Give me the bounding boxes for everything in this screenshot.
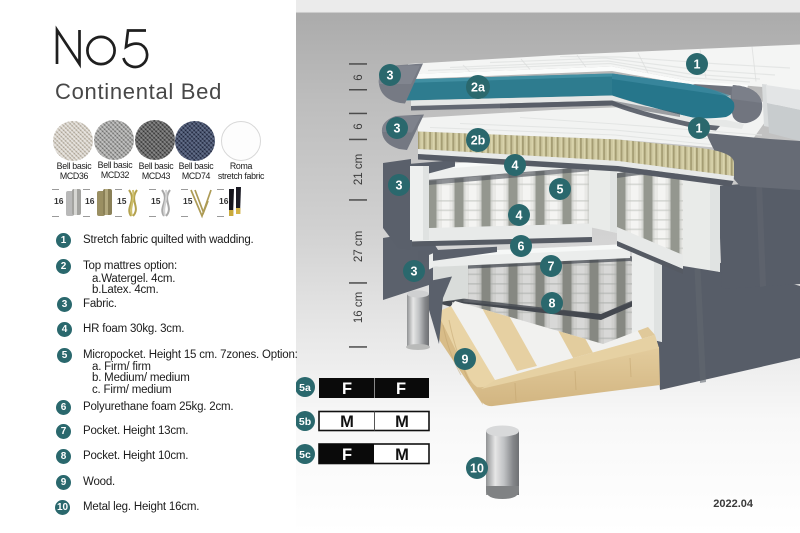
svg-text:8: 8 [549, 297, 556, 311]
svg-text:M: M [340, 413, 354, 431]
svg-text:5c: 5c [299, 449, 311, 461]
svg-text:16: 16 [85, 196, 95, 206]
svg-text:9: 9 [462, 353, 469, 367]
svg-text:1: 1 [694, 58, 701, 72]
svg-text:21 cm: 21 cm [353, 154, 365, 185]
svg-text:6: 6 [353, 123, 365, 129]
svg-text:5a: 5a [299, 382, 311, 394]
svg-text:2b: 2b [471, 134, 486, 148]
svg-text:3: 3 [396, 179, 403, 193]
svg-text:15: 15 [117, 196, 127, 206]
svg-text:4: 4 [512, 159, 519, 173]
svg-text:27 cm: 27 cm [353, 231, 365, 262]
svg-text:7: 7 [548, 260, 555, 274]
svg-text:M: M [395, 413, 409, 431]
svg-text:1: 1 [696, 122, 703, 136]
svg-text:6: 6 [353, 74, 365, 80]
svg-text:F: F [342, 380, 352, 398]
svg-text:5: 5 [557, 183, 564, 197]
svg-text:F: F [342, 446, 352, 464]
svg-text:10: 10 [470, 462, 484, 476]
svg-text:16: 16 [219, 196, 229, 206]
svg-text:2022.04: 2022.04 [713, 498, 754, 510]
svg-text:16: 16 [54, 196, 64, 206]
svg-text:5b: 5b [299, 416, 311, 428]
svg-text:F: F [396, 380, 406, 398]
svg-text:3: 3 [394, 122, 401, 136]
svg-text:6: 6 [518, 240, 525, 254]
svg-text:3: 3 [411, 265, 418, 279]
svg-text:2a: 2a [471, 81, 486, 95]
svg-text:16 cm: 16 cm [353, 292, 365, 323]
svg-text:15: 15 [151, 196, 161, 206]
svg-text:3: 3 [387, 69, 394, 83]
svg-text:4: 4 [516, 209, 523, 223]
svg-text:M: M [395, 446, 409, 464]
svg-text:15: 15 [183, 196, 193, 206]
